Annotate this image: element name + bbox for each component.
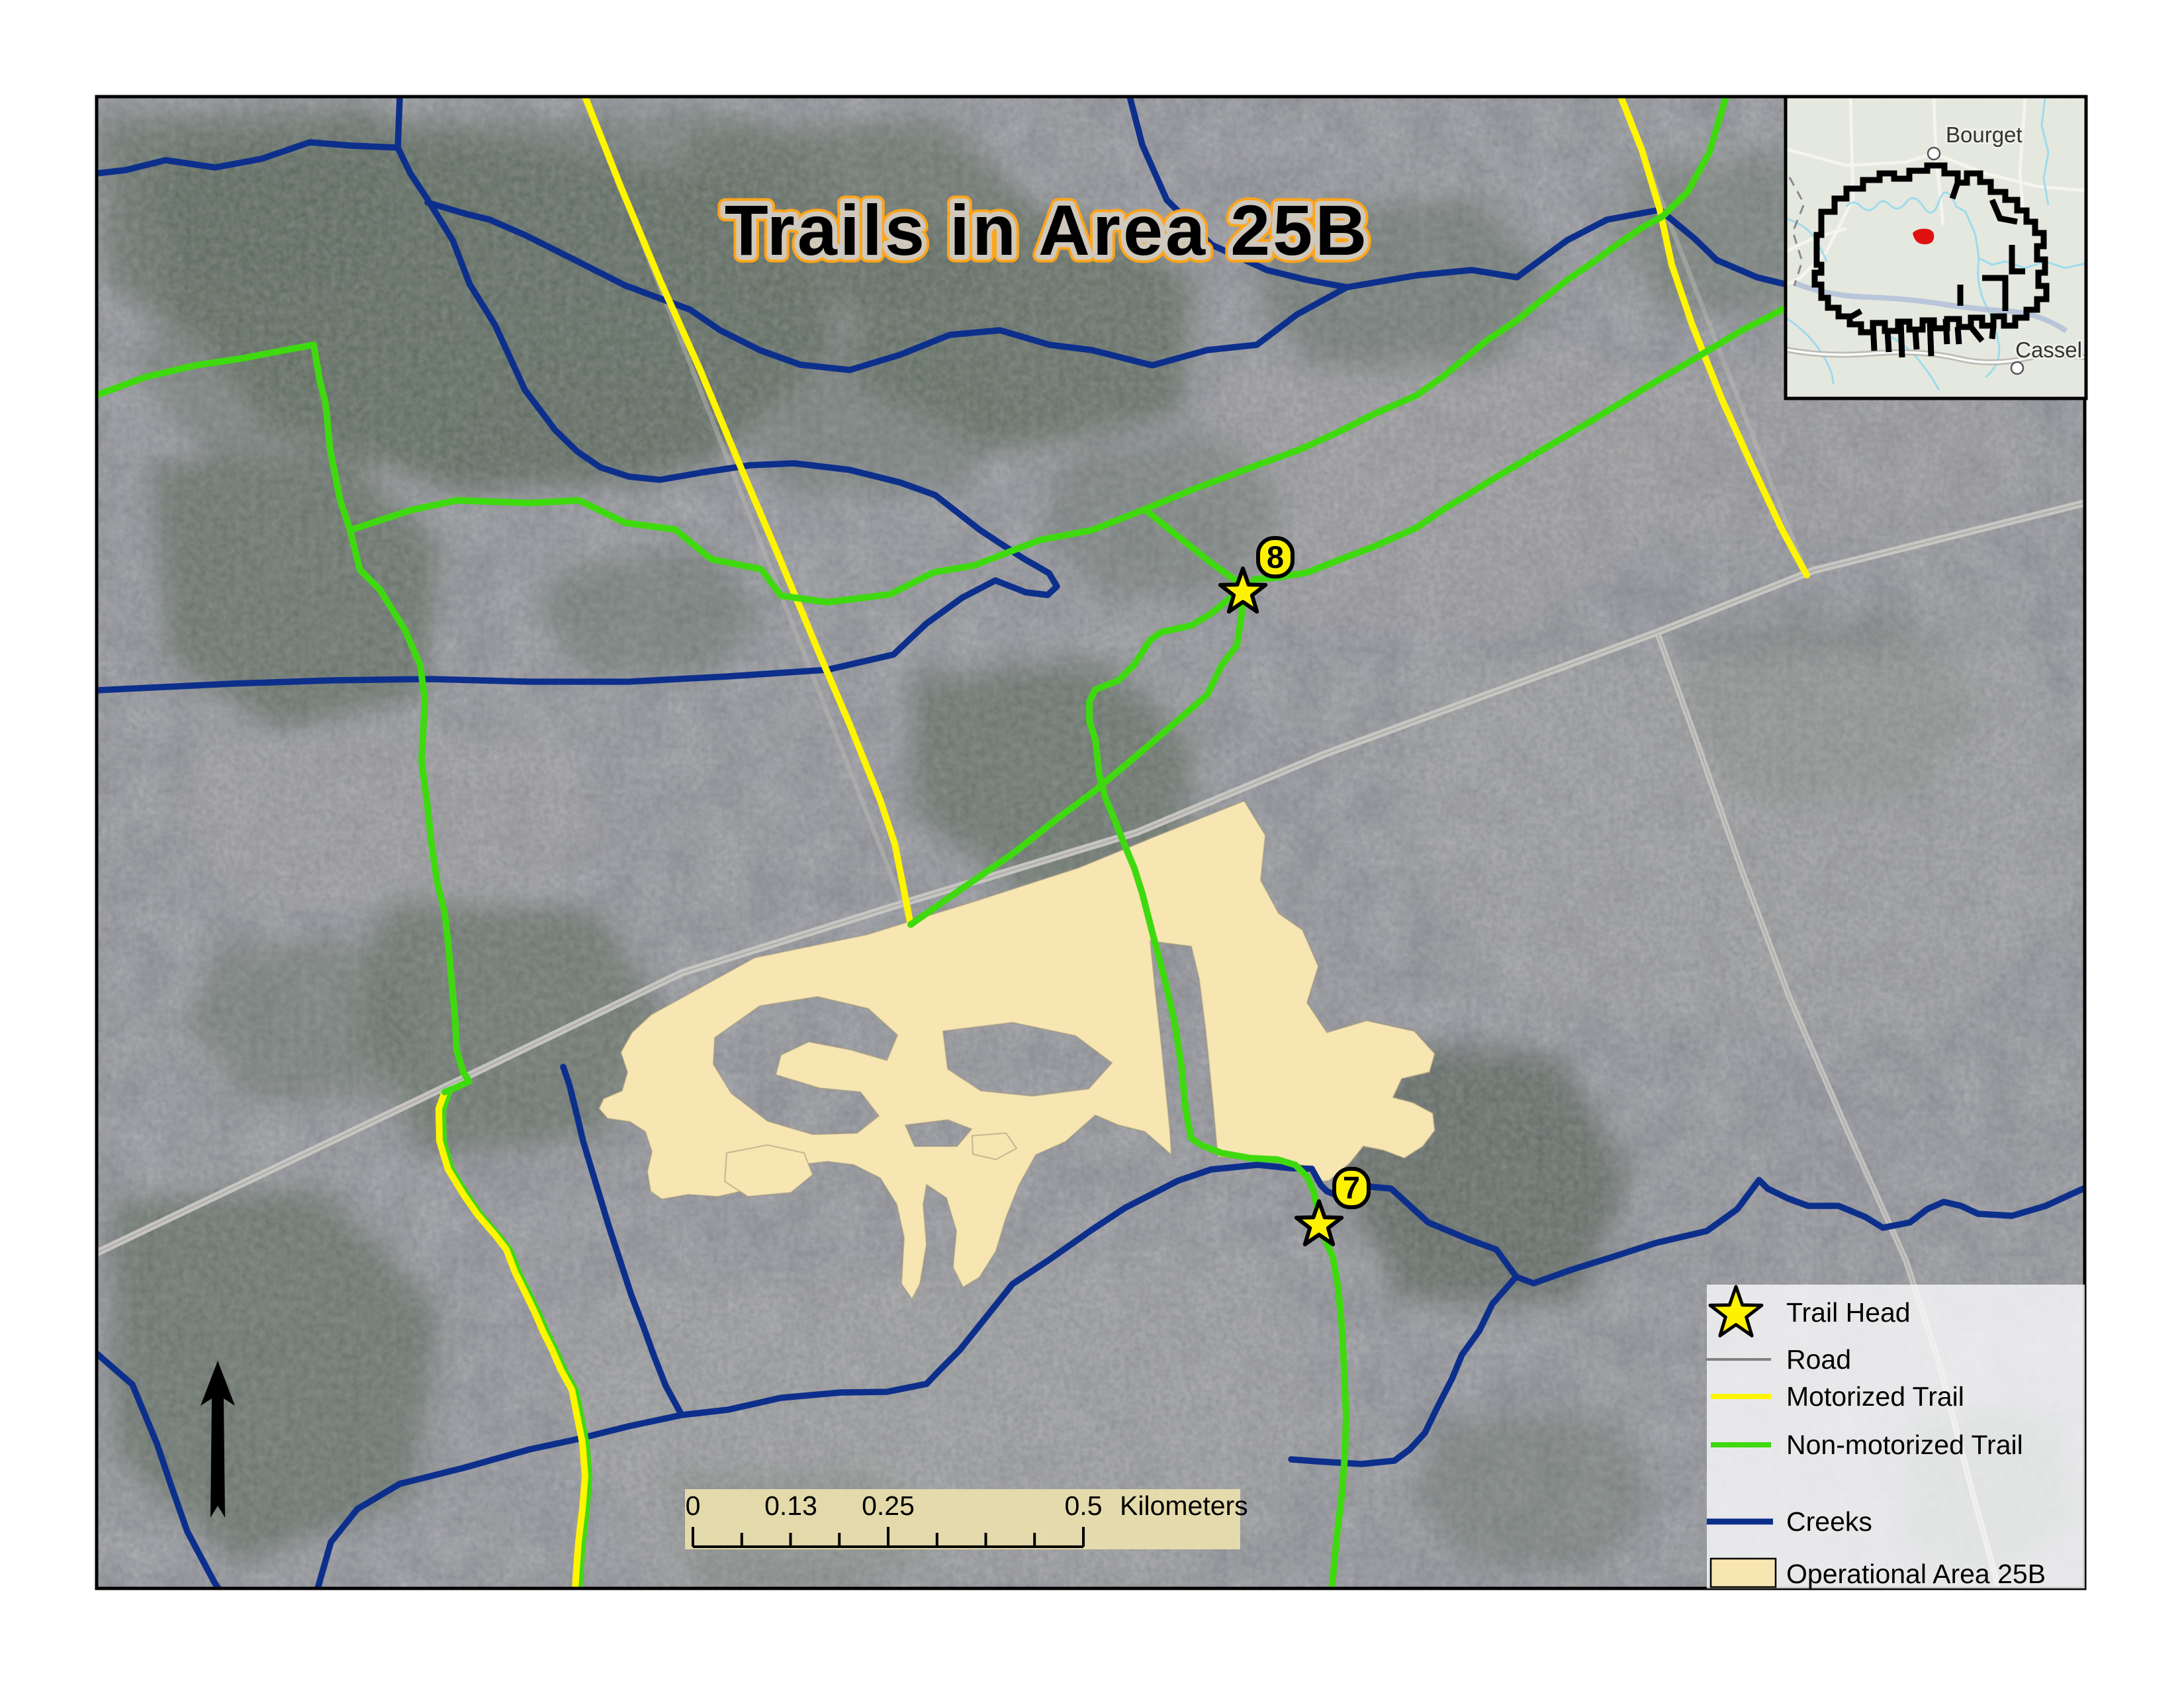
svg-text:0.13: 0.13 xyxy=(764,1490,817,1521)
svg-text:Non-motorized Trail: Non-motorized Trail xyxy=(1786,1430,2023,1460)
svg-text:Creeks: Creeks xyxy=(1786,1506,1872,1537)
svg-text:0.25: 0.25 xyxy=(862,1490,915,1521)
svg-text:0.5: 0.5 xyxy=(1065,1490,1103,1521)
svg-text:Bourget: Bourget xyxy=(1946,122,2023,147)
svg-text:Operational Area 25B: Operational Area 25B xyxy=(1786,1559,2046,1589)
svg-text:Trails in Area 25B: Trails in Area 25B xyxy=(725,190,1369,270)
svg-text:Kilometers: Kilometers xyxy=(1120,1490,1248,1521)
svg-text:Trail Head: Trail Head xyxy=(1786,1297,1911,1328)
svg-text:Cassel: Cassel xyxy=(2015,338,2082,362)
svg-text:Road: Road xyxy=(1786,1344,1851,1375)
svg-text:7: 7 xyxy=(1343,1170,1360,1205)
svg-text:Motorized Trail: Motorized Trail xyxy=(1786,1381,1964,1412)
svg-text:8: 8 xyxy=(1267,539,1284,574)
svg-text:0: 0 xyxy=(686,1490,701,1521)
